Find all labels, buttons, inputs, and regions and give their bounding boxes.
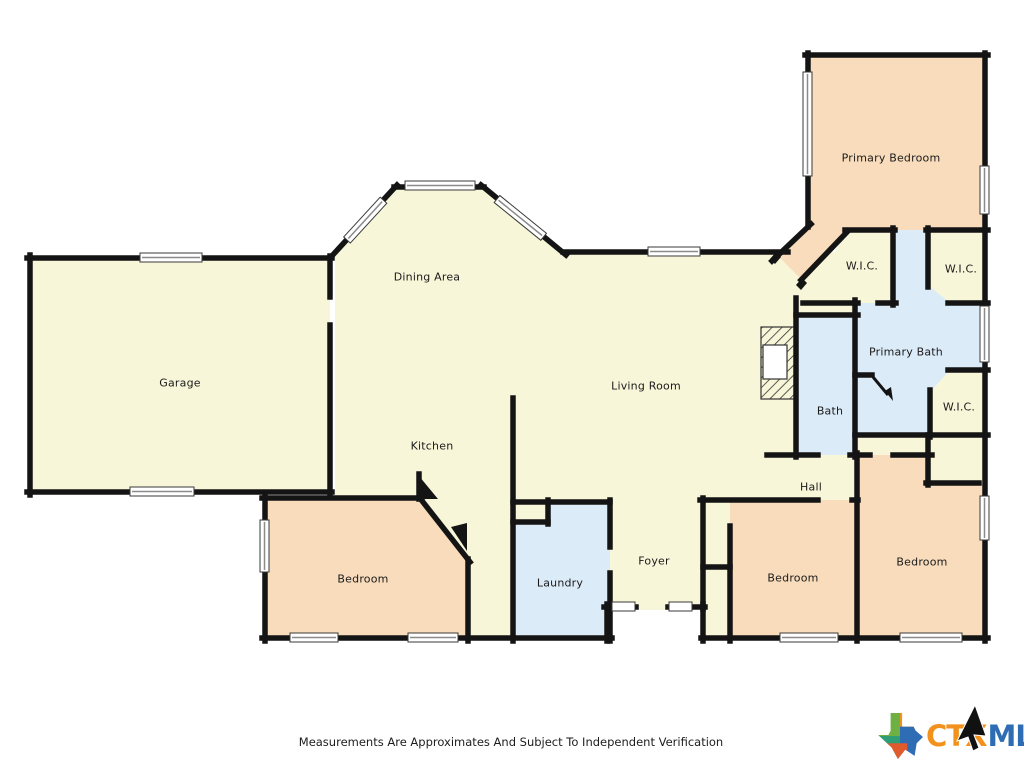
room-label-hall: Hall <box>800 481 822 494</box>
room-label-wic-bottom-right: W.I.C. <box>943 401 975 414</box>
room-label-wic-left: W.I.C. <box>846 260 878 273</box>
disclaimer-text: Measurements Are Approximates And Subjec… <box>299 735 723 749</box>
room-label-foyer: Foyer <box>638 555 669 568</box>
room-bath-area <box>796 315 855 455</box>
window-marker <box>612 602 635 611</box>
room-areas <box>30 55 985 652</box>
room-bedroom-right-closet-area <box>928 435 985 483</box>
room-garage-area <box>30 258 330 492</box>
room-label-primary-bedroom: Primary Bedroom <box>842 152 941 165</box>
fireplace-symbol <box>761 327 796 399</box>
room-label-bedroom-middle: Bedroom <box>767 572 818 585</box>
room-label-living: Living Room <box>611 380 681 393</box>
window-marker <box>669 602 692 611</box>
room-label-garage: Garage <box>159 377 200 390</box>
floor-plan-page: Garage Dining Area Kitchen Living Room P… <box>0 0 1024 768</box>
cursor-arrow-icon <box>950 700 994 756</box>
room-label-bedroom-right: Bedroom <box>896 556 947 569</box>
room-laundry-closet-area <box>513 502 548 522</box>
front-porch-area <box>604 610 701 652</box>
room-label-wic-top-right: W.I.C. <box>945 263 977 276</box>
room-label-bath: Bath <box>817 405 843 418</box>
room-label-kitchen: Kitchen <box>411 440 454 453</box>
floor-plan-canvas <box>0 0 1024 768</box>
room-label-dining: Dining Area <box>394 271 461 284</box>
texas-logo-icon <box>876 712 924 760</box>
room-label-laundry: Laundry <box>537 577 583 590</box>
room-label-primary-bath: Primary Bath <box>869 346 943 359</box>
room-bedroom-middle-area <box>730 500 857 638</box>
room-label-bedroom-left: Bedroom <box>337 573 388 586</box>
